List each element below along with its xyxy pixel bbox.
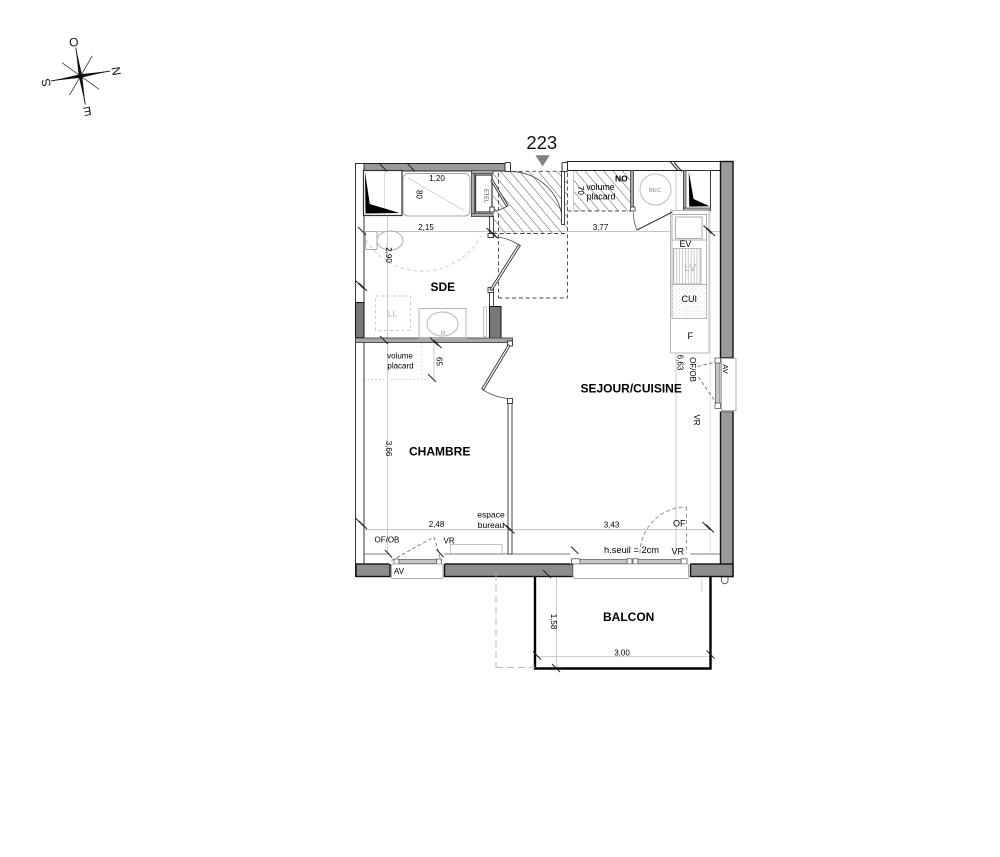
svg-text:BEC: BEC [649, 188, 661, 194]
svg-text:placard: placard [387, 362, 413, 371]
svg-text:65: 65 [435, 357, 444, 366]
svg-text:CUI: CUI [682, 294, 698, 304]
svg-text:NO: NO [615, 174, 628, 184]
svg-text:h.seuil = 2cm: h.seuil = 2cm [604, 545, 659, 555]
svg-text:placard: placard [587, 192, 616, 202]
svg-text:ETEL: ETEL [483, 189, 489, 203]
svg-text:3,77: 3,77 [593, 223, 609, 232]
svg-text:2,90: 2,90 [384, 247, 393, 263]
svg-text:70: 70 [576, 186, 585, 195]
svg-text:OF/OB: OF/OB [688, 357, 697, 382]
svg-text:AV: AV [721, 364, 730, 373]
svg-text:espace: espace [477, 510, 505, 520]
svg-text:3,00: 3,00 [614, 649, 630, 658]
svg-text:OF: OF [673, 519, 686, 529]
svg-text:CHAMBRE: CHAMBRE [409, 445, 470, 459]
svg-text:2,48: 2,48 [429, 520, 445, 529]
svg-text:VR: VR [672, 547, 685, 557]
svg-text:VR: VR [692, 414, 701, 425]
svg-text:3,66: 3,66 [384, 441, 393, 457]
svg-text:BALCON: BALCON [603, 610, 654, 624]
svg-text:volume: volume [586, 182, 614, 192]
svg-text:SEJOUR/CUISINE: SEJOUR/CUISINE [581, 382, 682, 396]
svg-text:bureau: bureau [478, 520, 505, 530]
svg-text:F: F [688, 331, 694, 341]
svg-text:LV: LV [685, 263, 697, 274]
svg-text:SDE: SDE [431, 280, 456, 294]
svg-text:80: 80 [415, 190, 424, 199]
svg-text:AV: AV [394, 567, 405, 576]
svg-text:3,43: 3,43 [604, 521, 620, 530]
svg-text:EV: EV [680, 239, 692, 249]
svg-text:VR: VR [444, 537, 455, 546]
svg-text:1,20: 1,20 [429, 174, 445, 183]
svg-text:223: 223 [526, 132, 557, 153]
svg-text:OF/OB: OF/OB [375, 536, 400, 545]
svg-text:6,63: 6,63 [676, 355, 685, 371]
svg-text:2,15: 2,15 [418, 223, 434, 232]
svg-text:1,58: 1,58 [549, 614, 558, 630]
svg-text:LL: LL [388, 309, 398, 319]
svg-text:volume: volume [387, 352, 413, 361]
